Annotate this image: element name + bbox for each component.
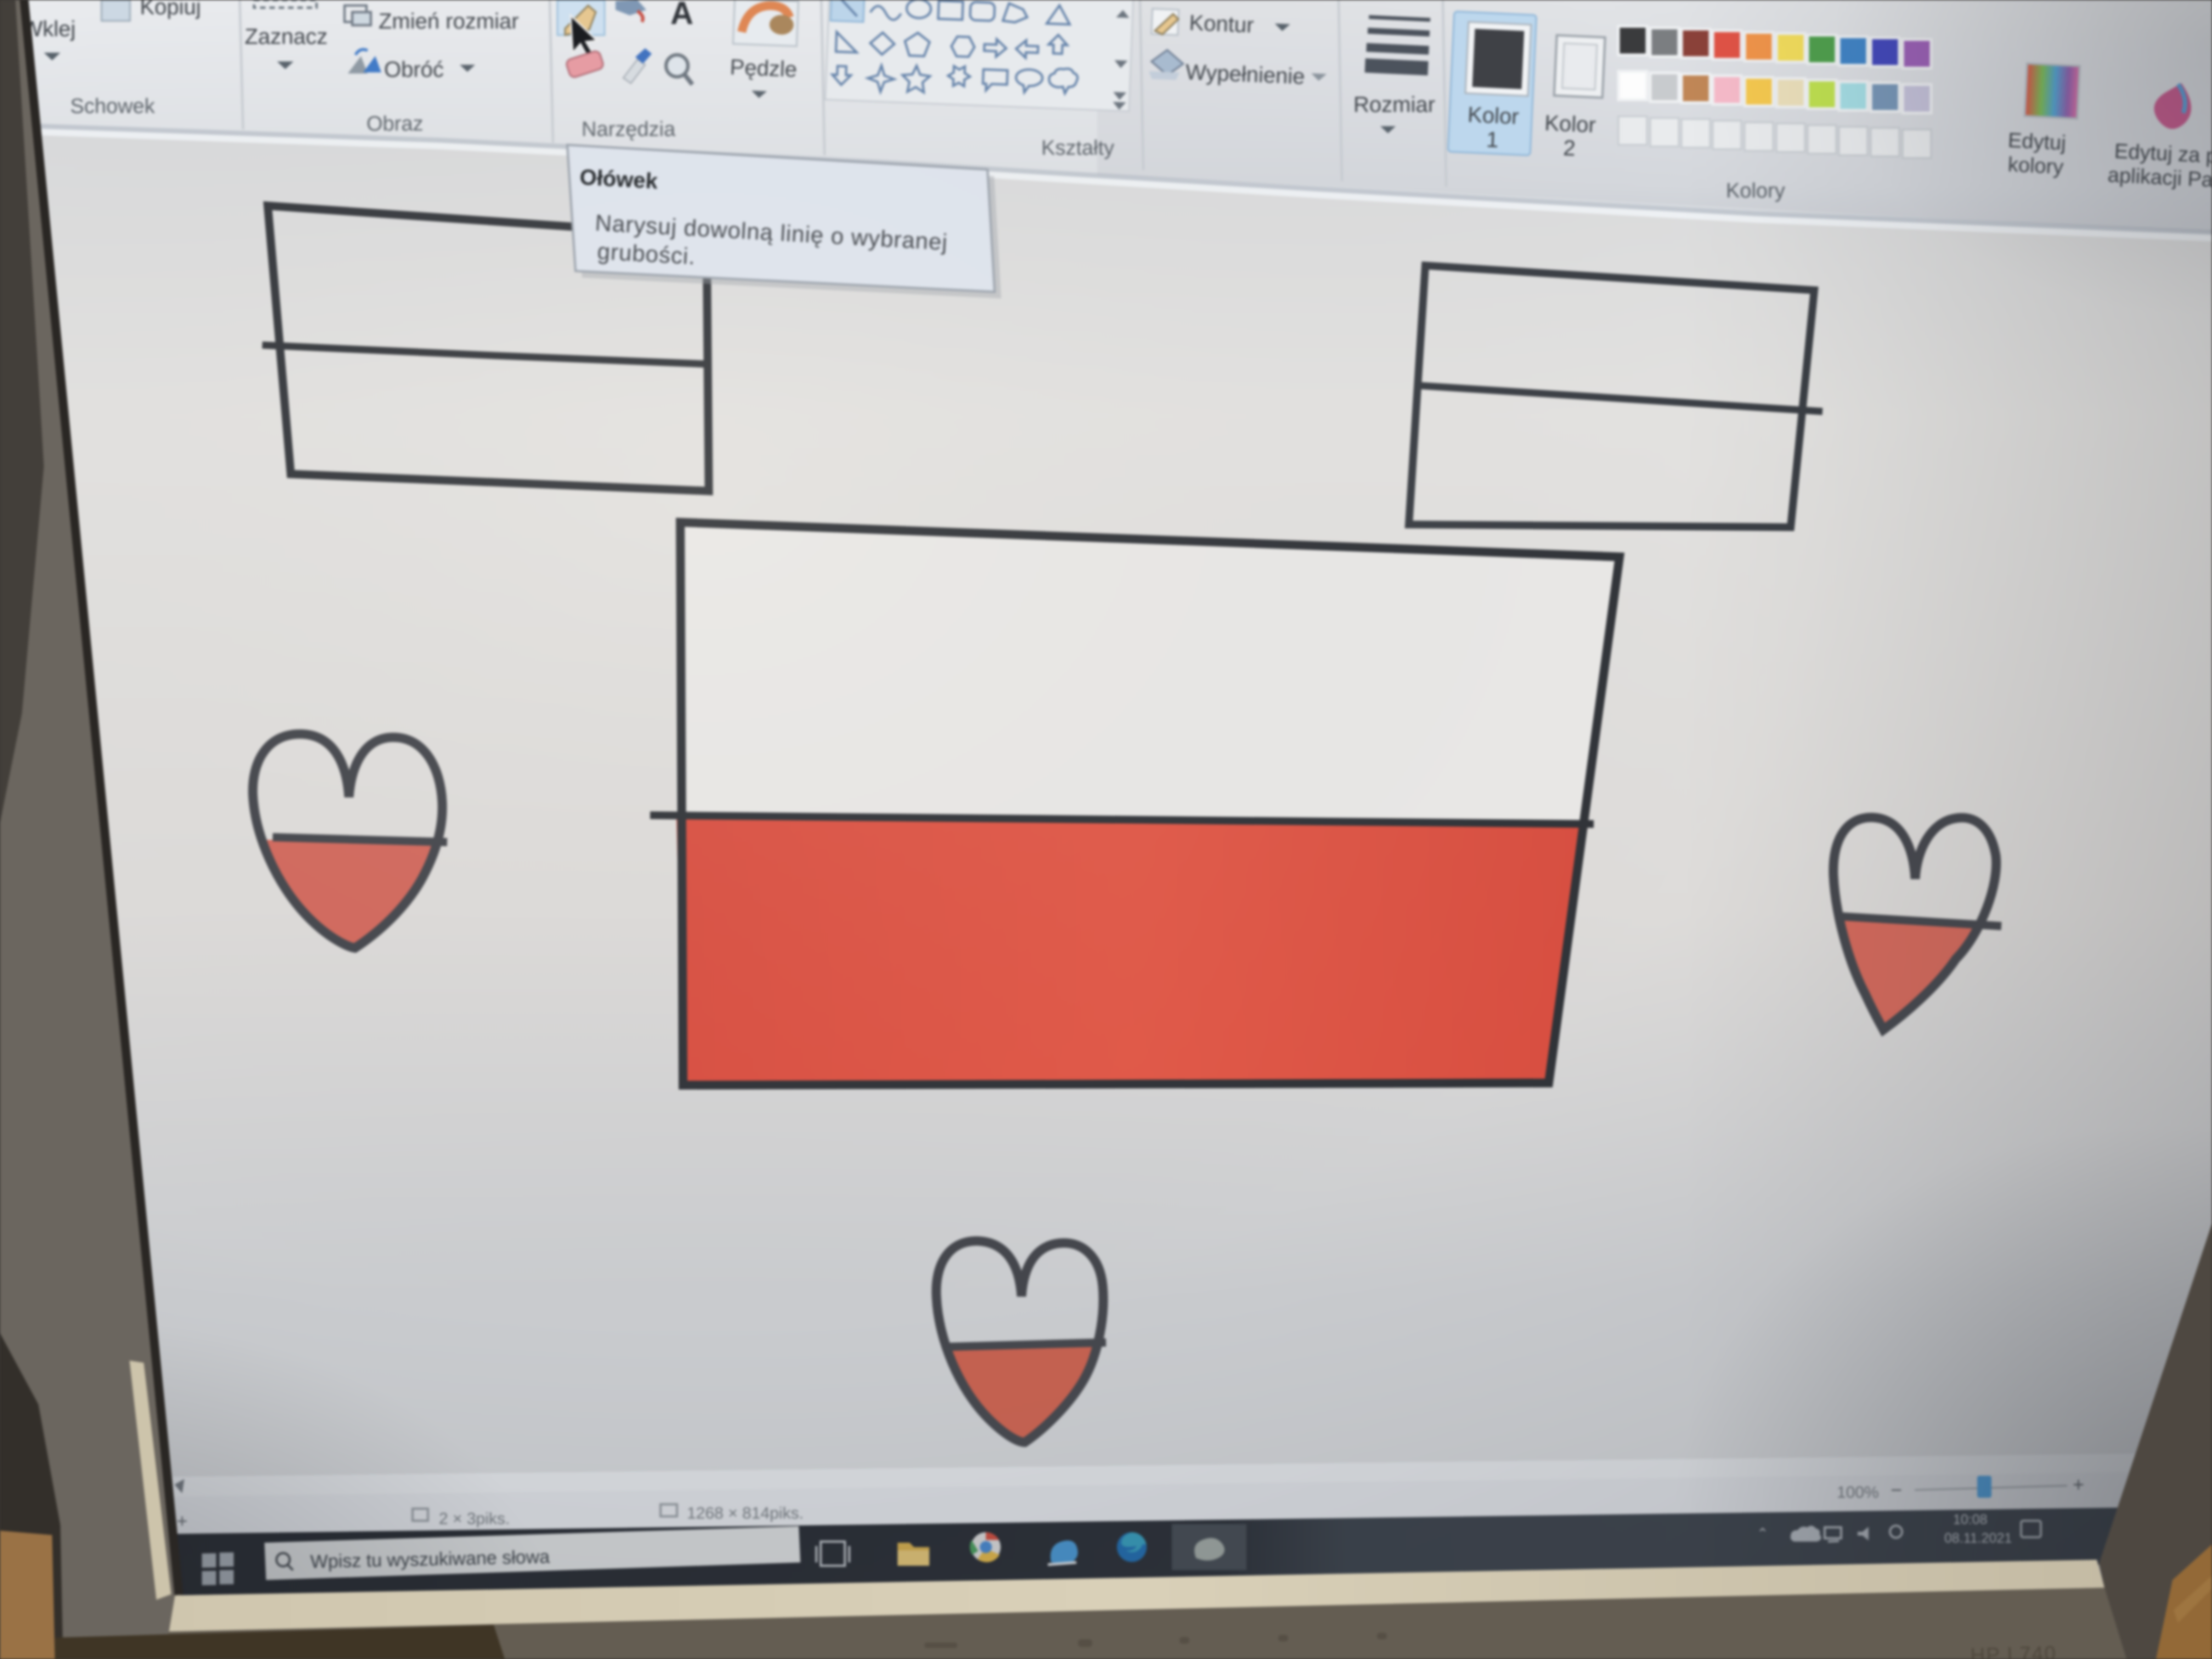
svg-text:HP L740: HP L740 <box>1970 1642 2057 1659</box>
